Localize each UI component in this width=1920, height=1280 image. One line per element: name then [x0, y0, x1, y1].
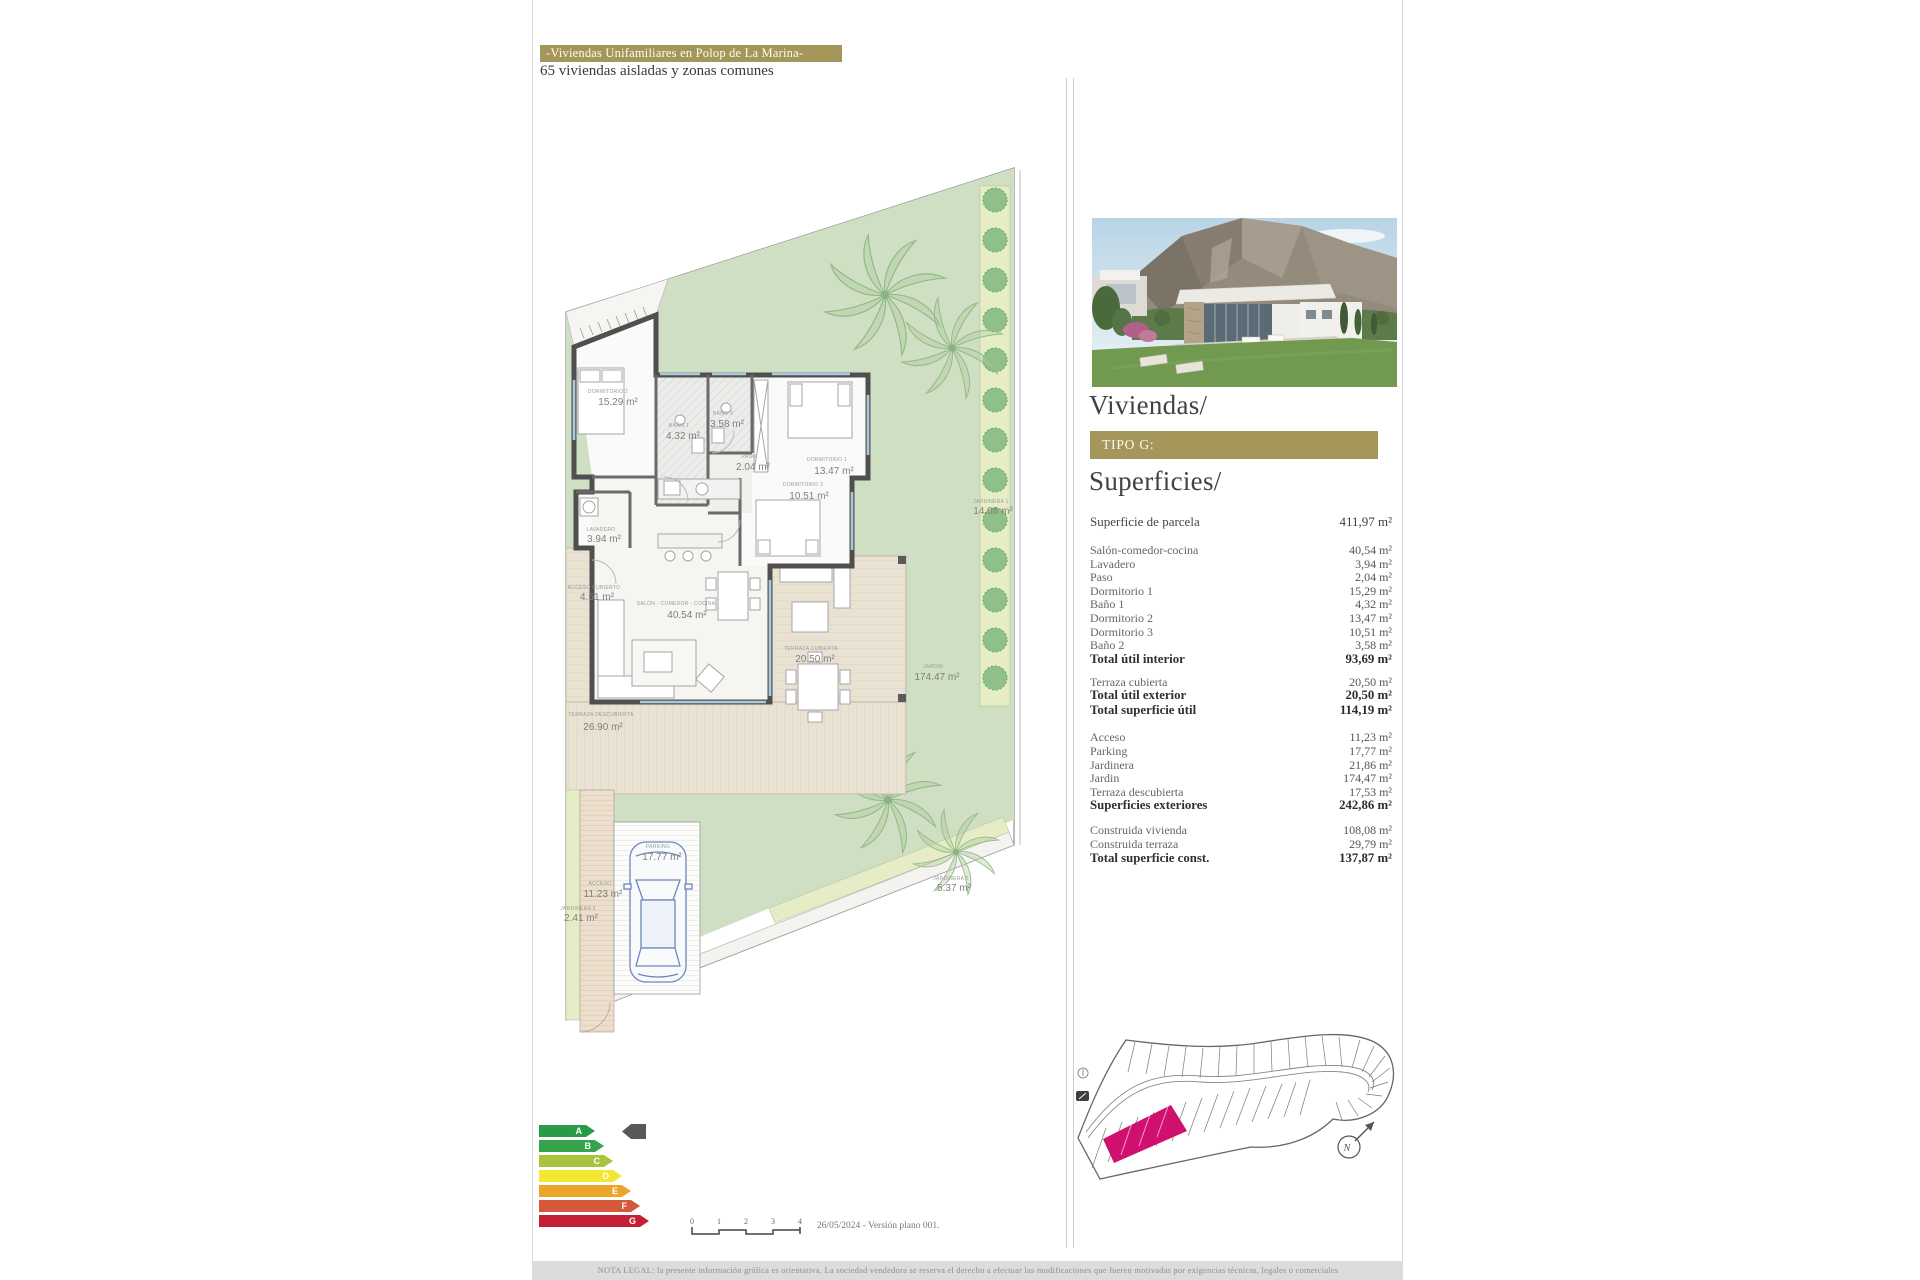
- floor-plan-canvas: DORMITORIO 2 15.29 m² BAÑO 1 4.32 m² BAÑ…: [0, 0, 1920, 1280]
- car-top-view: [624, 842, 692, 982]
- scale-tick: 4: [798, 1217, 802, 1226]
- table-row: Dormitorio 310,51 m²: [1090, 625, 1392, 639]
- scale-tick: 3: [771, 1217, 775, 1226]
- table-row: Construida vivienda108,08 m²: [1090, 823, 1392, 837]
- scale-tick: 0: [690, 1217, 694, 1226]
- room-label: JARDINERA 1: [973, 499, 1009, 505]
- north-compass-icon: N: [1338, 1122, 1374, 1158]
- table-row: Dormitorio 213,47 m²: [1090, 611, 1392, 625]
- room-label: JARDIN: [923, 664, 943, 670]
- plan-sheet-page: { "page": { "title": "-Viviendas Unifami…: [0, 0, 1920, 1280]
- tipo-g-bar: TIPO G:: [1090, 431, 1378, 459]
- room-area: 4.51 m²: [580, 592, 615, 603]
- legal-note-bar: NOTA LEGAL: la presente información gráf…: [533, 1261, 1403, 1280]
- energy-bar-b: B: [539, 1140, 604, 1152]
- table-row: Paso2,04 m²: [1090, 570, 1392, 584]
- table-total-row: Superficies exteriores242,86 m²: [1090, 798, 1392, 813]
- room-area: 40.54 m²: [667, 610, 707, 621]
- room-area: 13.47 m²: [814, 466, 854, 477]
- room-area: 15.29 m²: [598, 397, 638, 408]
- site-plan: N: [1076, 1035, 1393, 1179]
- table-total-row: Total útil exterior20,50 m²: [1090, 688, 1392, 703]
- jardinera-strip-left: [566, 790, 580, 1020]
- room-area: 10.51 m²: [789, 491, 829, 502]
- room-label: JARDINERA 3: [560, 906, 596, 912]
- room-label: ACCESO CUBIERTO: [568, 585, 621, 591]
- surfaces-table: Superficie de parcela 411,97 m² Salón-co…: [1090, 514, 1392, 866]
- room-label: BAÑO 1: [669, 422, 689, 429]
- energy-bar-g: G: [539, 1215, 649, 1227]
- room-label: DORMITORIO 3: [783, 482, 823, 488]
- room-area: 174.47 m²: [914, 672, 960, 683]
- table-row: Salón-comedor-cocina40,54 m²: [1090, 543, 1392, 557]
- mini-compass-icon: [1078, 1068, 1088, 1078]
- room-label: DORMITORIO 2: [588, 389, 628, 395]
- viviendas-heading: Viviendas/: [1089, 390, 1207, 421]
- room-label: TERRAZA DESCUBIERTA: [568, 712, 634, 718]
- room-area: 4.32 m²: [666, 431, 701, 442]
- room-area: 17.77 m²: [642, 852, 682, 863]
- room-label: BAÑO 2: [713, 410, 733, 417]
- room-area: 11.23 m²: [584, 889, 623, 900]
- superficies-heading: Superficies/: [1089, 466, 1222, 497]
- room-area: 3.58 m²: [710, 419, 745, 430]
- sheet-title-bar: -Viviendas Unifamiliares en Polop de La …: [540, 45, 842, 62]
- energy-bar-e: E: [539, 1185, 631, 1197]
- energy-bar-f: F: [539, 1200, 640, 1212]
- table-row: Acceso11,23 m²: [1090, 730, 1392, 744]
- cypress: [1340, 302, 1348, 334]
- room-area: 14.08 m²: [973, 506, 1013, 517]
- room-area: 2.41 m²: [564, 913, 599, 924]
- table-row: Baño 23,58 m²: [1090, 638, 1392, 652]
- energy-bar-d: D: [539, 1170, 622, 1182]
- villa-render-photo: [1092, 218, 1397, 387]
- room-area: 26.90 m²: [583, 722, 623, 733]
- room-label: PASO: [742, 454, 757, 460]
- table-total-row: Total útil interior93,69 m²: [1090, 652, 1392, 667]
- table-row: Terraza descubierta17,53 m²: [1090, 785, 1392, 799]
- scale-bar: 0 1 2 3 4: [690, 1217, 802, 1234]
- energy-bar-c: C: [539, 1155, 613, 1167]
- room-area: 5.37 m²: [937, 883, 972, 894]
- room-label: SALÓN - COMEDOR - COCINA: [637, 600, 716, 607]
- room-label: TERRAZA CUBIERTA: [784, 646, 838, 652]
- sheet-subtitle: 65 viviendas aisladas y zonas comunes: [540, 63, 774, 80]
- energy-bar-a: A: [539, 1125, 595, 1137]
- table-row: Parking17,77 m²: [1090, 744, 1392, 758]
- table-row: Lavadero3,94 m²: [1090, 557, 1392, 571]
- table-row: Baño 14,32 m²: [1090, 597, 1392, 611]
- scale-tick: 2: [744, 1217, 748, 1226]
- table-total-row: Total superficie const.137,87 m²: [1090, 851, 1392, 866]
- table-row: Terraza cubierta20,50 m²: [1090, 675, 1392, 689]
- room-label: PARKING: [646, 844, 670, 850]
- scale-tick: 1: [717, 1217, 721, 1226]
- table-row: Jardinera21,86 m²: [1090, 758, 1392, 772]
- mini-marker-icon: [1076, 1091, 1089, 1101]
- table-row: Dormitorio 115,29 m²: [1090, 584, 1392, 598]
- room-area: 20.50 m²: [795, 654, 835, 665]
- room-label: ACCESO: [589, 881, 612, 887]
- room-label: LAVADERO: [587, 527, 616, 533]
- date-version-text: 26/05/2024 - Versión plano 001.: [817, 1221, 940, 1231]
- north-label: N: [1343, 1143, 1352, 1154]
- room-area: 3.94 m²: [587, 534, 622, 545]
- table-row: Construida terraza29,79 m²: [1090, 837, 1392, 851]
- table-row: Jardin174,47 m²: [1090, 771, 1392, 785]
- table-row: Superficie de parcela 411,97 m²: [1090, 514, 1392, 530]
- room-area: 2.04 m²: [736, 462, 771, 473]
- room-label: JARDINERA 2: [933, 876, 969, 882]
- table-total-row: Total superficie útil114,19 m²: [1090, 703, 1392, 718]
- room-label: DORMITORIO 1: [807, 457, 847, 463]
